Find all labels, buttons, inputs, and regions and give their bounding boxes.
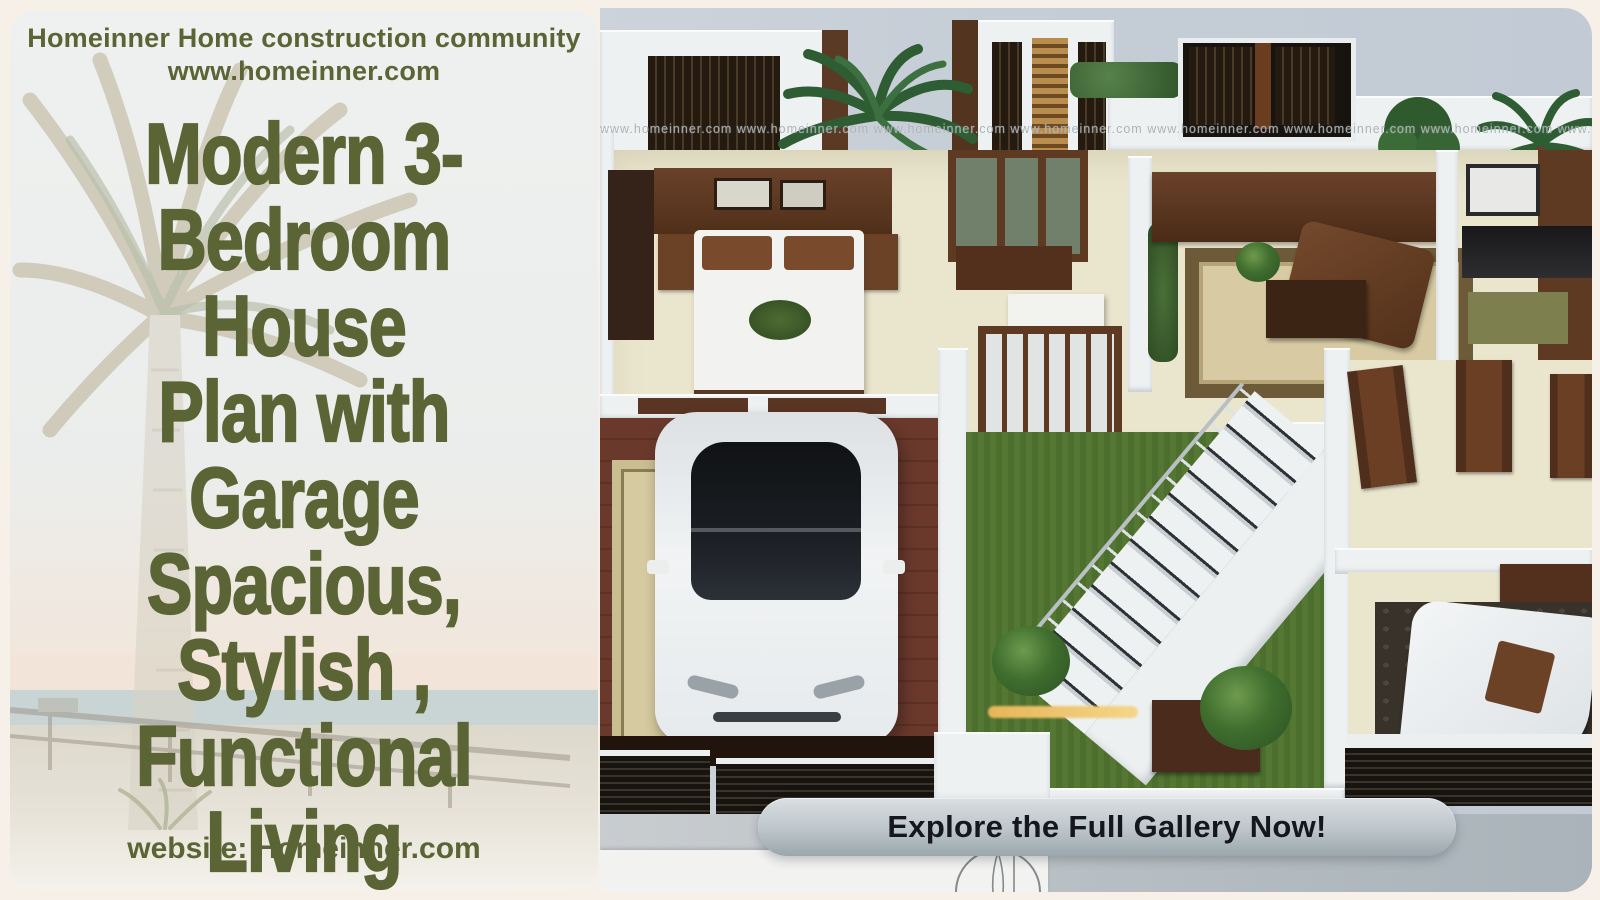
- title-line: Stylish ,: [69, 628, 539, 714]
- title-line: Functional: [69, 714, 539, 800]
- title-line: Garage: [69, 456, 539, 542]
- nightstand: [658, 234, 698, 290]
- wall-art: [714, 178, 772, 210]
- railing-slats: [1189, 47, 1253, 125]
- pillow: [784, 236, 854, 270]
- pillow: [702, 236, 772, 270]
- entrance-lattice-right: [1078, 42, 1106, 164]
- kitchen-wall: [1436, 150, 1458, 372]
- title-line: Modern 3-: [69, 112, 539, 198]
- entrance-lattice-center: [1032, 38, 1068, 166]
- headlight: [812, 674, 866, 700]
- white-car: [655, 412, 898, 744]
- master-bed: [694, 230, 864, 406]
- title-line: Plan with: [69, 370, 539, 456]
- front-grille: [713, 712, 841, 722]
- railing-post: [1255, 43, 1271, 129]
- kitchen-counter-mat: [1468, 292, 1568, 344]
- upper-window-lattice: [648, 56, 780, 164]
- website-footer: website: Homeinner.com: [10, 832, 598, 866]
- wall-art: [780, 180, 826, 210]
- house-3d-render: www.homeinner.com www.homeinner.com www.…: [600, 8, 1592, 892]
- parapet-hedge: [1070, 62, 1182, 98]
- explore-gallery-button[interactable]: Explore the Full Gallery Now!: [758, 798, 1456, 856]
- under-stair-light: [988, 706, 1138, 718]
- indoor-plant-strip: [1148, 222, 1178, 362]
- palm-canopy-icon: [778, 44, 978, 164]
- living-sideboard-sofa: [1152, 172, 1438, 242]
- wardrobe: [608, 170, 654, 340]
- car-roof-glass: [691, 442, 861, 600]
- window-rail: [1345, 734, 1592, 748]
- bedroom-door: [1456, 360, 1512, 472]
- left-text-panel: Homeinner Home construction community ww…: [10, 10, 598, 890]
- side-mirror: [883, 560, 905, 574]
- bathroom-door: [1550, 374, 1592, 478]
- railing-slats: [1275, 47, 1335, 125]
- car-glass-divider: [691, 528, 861, 532]
- side-mirror: [647, 560, 669, 574]
- nightstand: [858, 234, 898, 290]
- explore-gallery-button-label: Explore the Full Gallery Now!: [887, 809, 1326, 845]
- kitchen-appliance-band: [1462, 226, 1592, 278]
- potted-plant: [1236, 242, 1280, 282]
- foyer-cabinet: [956, 246, 1072, 290]
- coffee-table: [1266, 280, 1366, 338]
- page-title: Modern 3- Bedroom House Plan with Garage…: [69, 112, 539, 886]
- bed-blanket: [1484, 640, 1555, 714]
- fence-panel: [600, 750, 710, 824]
- community-header-line1: Homeinner Home construction community: [10, 22, 598, 55]
- lawn-palm-bush: [1200, 666, 1292, 750]
- watermark-text: www.homeinner.com www.homeinner.com www.…: [600, 120, 1592, 138]
- entrance-lattice-left: [992, 42, 1022, 164]
- title-line: Bedroom House: [69, 198, 539, 370]
- title-line: Spacious,: [69, 542, 539, 628]
- lawn-palm-bush: [992, 626, 1070, 696]
- microwave: [1466, 164, 1540, 216]
- duvet-leaf-decor: [749, 300, 811, 340]
- mullion: [997, 158, 1005, 254]
- headboard-wall: [654, 168, 892, 234]
- headlight: [686, 674, 740, 700]
- poster-canvas: Homeinner Home construction community ww…: [0, 0, 1600, 900]
- community-header: Homeinner Home construction community ww…: [10, 22, 598, 88]
- mullion: [1038, 158, 1046, 254]
- community-header-url: www.homeinner.com: [10, 55, 598, 88]
